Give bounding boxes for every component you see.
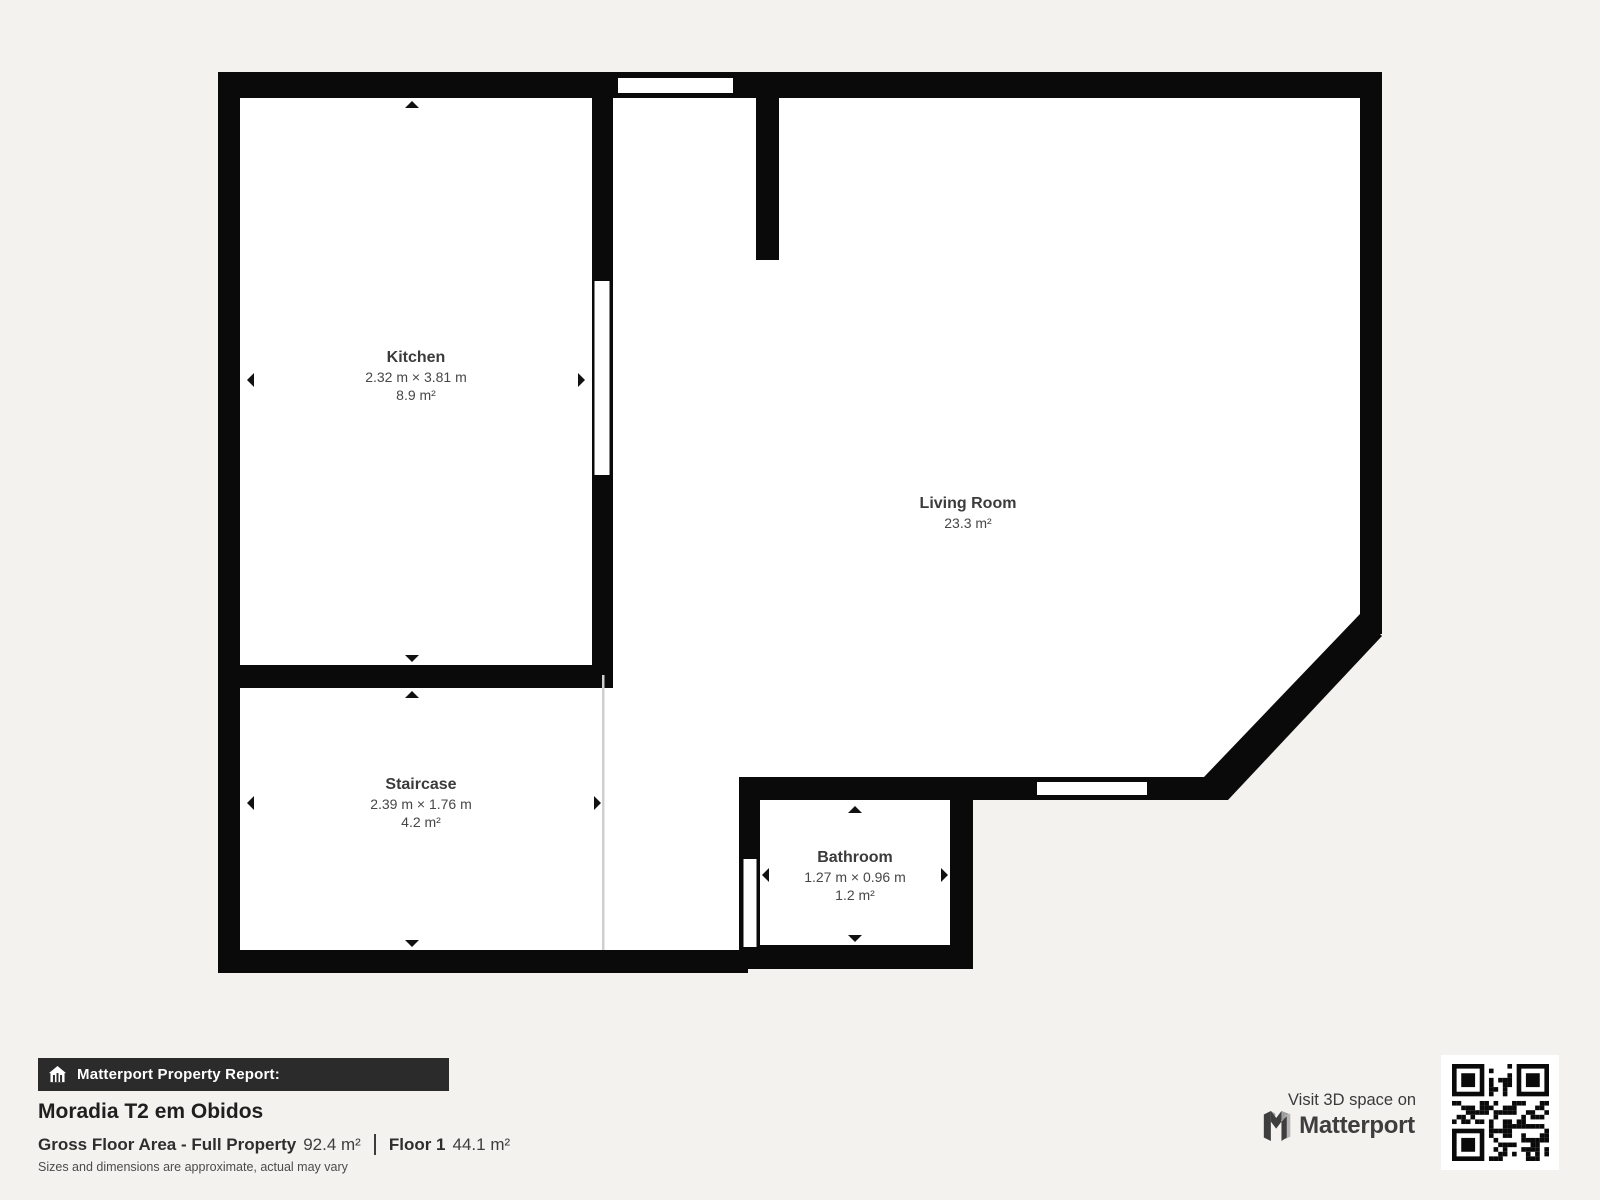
room-label-bathroom: Bathroom 1.27 m × 0.96 m 1.2 m² [804, 848, 906, 904]
floor-label: Floor 1 [389, 1135, 446, 1155]
wall-bathroom-bottom [739, 945, 973, 969]
room-label-staircase: Staircase 2.39 m × 1.76 m 4.2 m² [370, 775, 472, 831]
room-area: 4.2 m² [370, 813, 472, 831]
window-living-bottom [1036, 781, 1148, 796]
room-name: Living Room [920, 494, 1017, 514]
room-name: Staircase [370, 775, 472, 795]
room-dimensions: 2.32 m × 3.81 m [365, 368, 467, 386]
wall-left [218, 72, 240, 973]
wall-right [1360, 72, 1382, 634]
living-room-floor [770, 90, 1370, 792]
floorplan-report-page: Kitchen 2.32 m × 3.81 m 8.9 m² Living Ro… [0, 0, 1600, 1200]
room-label-living-room: Living Room 23.3 m² [920, 494, 1017, 532]
room-dimensions: 2.39 m × 1.76 m [370, 795, 472, 813]
report-stats: Gross Floor Area - Full Property 92.4 m²… [38, 1134, 510, 1155]
qr-code [1441, 1055, 1559, 1170]
wall-bottom [218, 950, 748, 973]
floorplan-drawing [0, 0, 1600, 1200]
window-kitchen-right [594, 280, 611, 476]
wall-kitchen-bottom [218, 665, 604, 688]
gross-floor-area-label: Gross Floor Area - Full Property [38, 1135, 296, 1155]
matterport-wordmark: Matterport [1299, 1112, 1415, 1140]
matterport-logo-icon [1261, 1110, 1291, 1142]
window-top-wall [617, 77, 734, 94]
visit-3d-space-text: Visit 3D space on [1288, 1091, 1416, 1110]
room-area: 1.2 m² [804, 886, 906, 904]
staircase-hall-separator [602, 675, 605, 950]
report-header-bar: Matterport Property Report: [38, 1058, 449, 1091]
report-bar-label: Matterport Property Report: [77, 1066, 280, 1083]
wall-bathroom-right [950, 777, 973, 969]
floor-value: 44.1 m² [453, 1135, 511, 1155]
matterport-logo: Matterport [1261, 1110, 1415, 1142]
qr-pattern [1452, 1064, 1549, 1161]
disclaimer-text: Sizes and dimensions are approximate, ac… [38, 1160, 348, 1174]
gross-floor-area-value: 92.4 m² [303, 1135, 361, 1155]
property-title: Moradia T2 em Obidos [38, 1100, 263, 1124]
room-label-kitchen: Kitchen 2.32 m × 3.81 m 8.9 m² [365, 348, 467, 404]
room-name: Kitchen [365, 348, 467, 368]
room-dimensions: 1.27 m × 0.96 m [804, 868, 906, 886]
wall-hall-stub [756, 72, 779, 260]
room-area: 23.3 m² [920, 514, 1017, 532]
stats-divider [374, 1134, 376, 1155]
wall-livingroom-bottom [739, 777, 1228, 800]
window-bathroom-left [743, 858, 758, 948]
house-icon [48, 1065, 67, 1084]
wall-top [218, 72, 1382, 98]
room-area: 8.9 m² [365, 386, 467, 404]
room-name: Bathroom [804, 848, 906, 868]
